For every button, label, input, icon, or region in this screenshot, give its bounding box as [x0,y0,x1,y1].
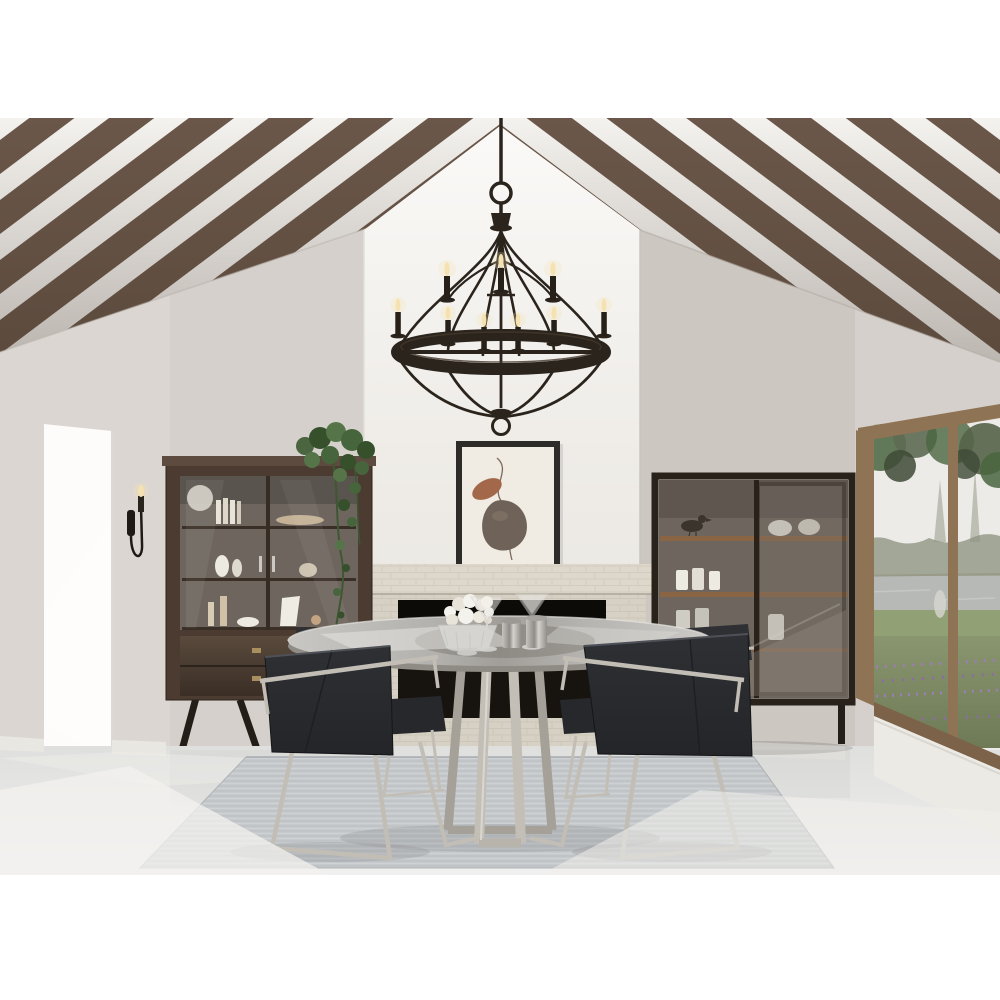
sconce-candle [138,496,144,512]
sconce-backplate [127,510,135,536]
cabinet-door-handle [259,556,262,572]
view-lake [855,576,1000,612]
window-view [854,405,1000,750]
cabinet-door-stile [266,476,270,630]
window-mullion [948,414,958,740]
framed-artwork [456,441,563,576]
window-left-stile [856,430,874,706]
decor-candlestick [208,602,214,626]
white-margin-bottom [0,875,1000,1000]
decor-vase [215,555,229,577]
product-photo [0,0,1000,1000]
white-margin-top [0,0,1000,118]
decor-jars [676,570,688,590]
view-grass [855,610,1000,638]
drawer-knob [252,648,261,653]
picture-window [854,404,1000,838]
dining-room-scene [0,118,1000,875]
decor-figurine [311,615,321,625]
